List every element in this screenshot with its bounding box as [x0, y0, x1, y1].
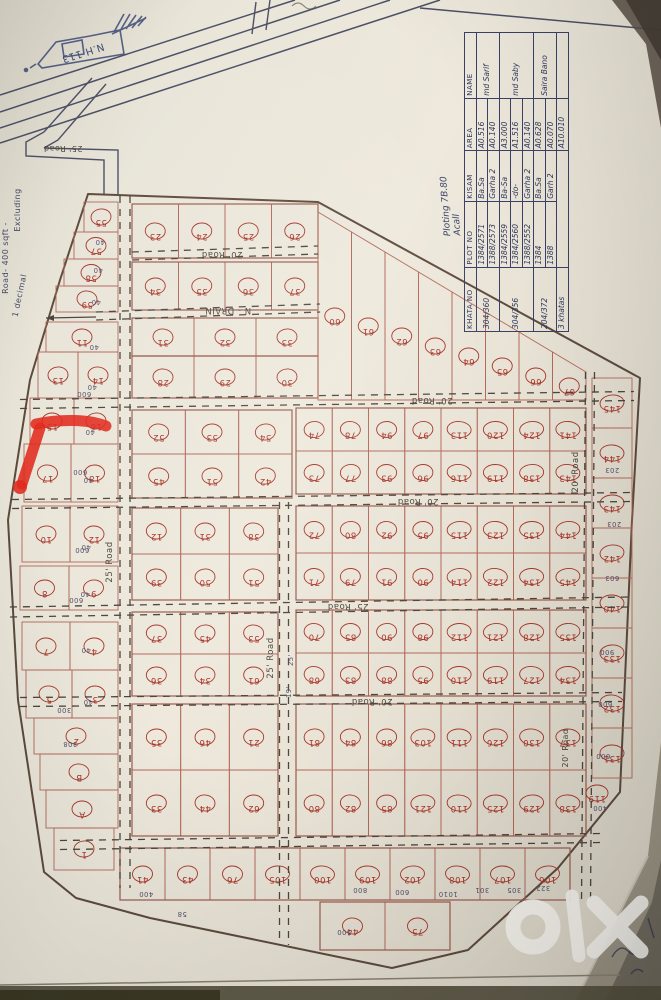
plot-cell	[477, 408, 513, 451]
plot-cell	[369, 506, 405, 553]
plot-cell	[514, 610, 550, 653]
dimension-label: 40	[89, 343, 99, 351]
plot-cell	[70, 622, 118, 670]
plot-block-outline	[132, 356, 318, 398]
plot-number: 134	[559, 675, 577, 685]
road-dashed-line	[582, 372, 586, 902]
plot-cell	[132, 770, 181, 836]
highway-line	[0, 0, 295, 95]
plot-cell	[132, 410, 185, 454]
highway-line	[0, 0, 440, 143]
plot-cell	[550, 408, 586, 451]
plot-number: 61	[362, 326, 374, 336]
plot-cell	[332, 653, 368, 696]
plot-number: 60	[329, 316, 341, 326]
table-cell-plot: 1384/2571	[476, 201, 488, 267]
plot-number: 145	[603, 403, 621, 413]
plot-number: 140	[603, 603, 621, 613]
plot-cell	[229, 704, 278, 770]
plot-cell	[229, 554, 278, 600]
red-highlight-marker	[36, 420, 106, 426]
plot-number: 23	[149, 231, 161, 241]
dimension-label: 308	[63, 740, 77, 748]
plot-number: 67	[563, 386, 575, 396]
plot-number: 138	[559, 803, 577, 813]
plot-number: 39	[150, 577, 162, 587]
table-cell-area: A0.516	[476, 98, 488, 150]
plot-number: 71	[308, 577, 320, 587]
plot-cell	[181, 770, 230, 836]
table-cell-plot: 1384	[534, 201, 546, 267]
dimension-label: 40	[83, 698, 93, 706]
plot-number: 41	[137, 874, 149, 884]
plot-cell	[550, 610, 586, 653]
plot-number: 7	[43, 646, 49, 656]
plot-number: 35	[150, 737, 162, 747]
plot-number: 21	[248, 737, 260, 747]
plot-number: 66	[530, 376, 542, 386]
plot-cell	[477, 770, 513, 836]
road-dashed-line	[12, 501, 632, 508]
plot-number: 24	[196, 231, 208, 241]
plot-number: 92	[381, 530, 393, 540]
plot-number: 78	[344, 430, 356, 440]
plot-cell	[441, 553, 477, 600]
red-highlight-marker	[22, 428, 40, 484]
plot-cell	[255, 848, 300, 900]
dimension-label: 203	[605, 466, 619, 474]
plot-number: 33	[281, 337, 293, 347]
plot-number: 142	[603, 553, 621, 563]
plot-number: 38	[248, 531, 260, 541]
plot-cell	[256, 318, 318, 356]
plot-number: 106	[539, 874, 557, 884]
plot-number: 11	[76, 337, 88, 347]
plot-number: 141	[559, 430, 577, 440]
road-dashed-line	[10, 607, 628, 617]
plot-number: 64	[463, 356, 475, 366]
plot-number: 46	[199, 737, 211, 747]
plot-number: 122	[487, 577, 505, 587]
plot-cell	[296, 653, 332, 696]
plot-number: 32	[219, 337, 231, 347]
plot-number: 97	[417, 430, 429, 440]
table-cell-khata: 3 khatas	[557, 267, 569, 331]
table-header-kisam: KISAM	[465, 151, 477, 201]
plot-cell	[550, 770, 586, 836]
plot-number: 124	[523, 430, 541, 440]
plot-number: 84	[344, 737, 356, 747]
plot-cell	[592, 378, 632, 428]
plot-cell	[38, 352, 78, 398]
plot-number: 75	[412, 926, 424, 936]
plot-number: 103	[414, 737, 432, 747]
dimension-label: 40	[83, 476, 93, 484]
plot-cell	[320, 902, 385, 950]
plot-number: 128	[523, 632, 541, 642]
plot-cell	[514, 451, 550, 494]
road-label: N - DRAIN	[205, 305, 251, 315]
plot-number: 33	[150, 803, 162, 813]
dimension-label: 203	[607, 520, 621, 528]
plot-number: 12	[150, 531, 162, 541]
plot-cell	[369, 704, 405, 770]
road-label: 25' Road	[327, 601, 368, 611]
dimension-label: 1010	[438, 890, 457, 898]
plot-number: 68	[308, 675, 320, 685]
plot-cell	[181, 654, 230, 696]
plot-cell	[225, 262, 272, 310]
plot-number: 129	[523, 803, 541, 813]
plot-number: 96	[417, 473, 429, 483]
plot-number: 50	[199, 577, 211, 587]
plot-number: 130	[523, 737, 541, 747]
map-annotation: Excluding	[13, 188, 22, 231]
road-dashed-line	[10, 597, 628, 607]
plot-cell	[405, 653, 441, 696]
table-cell-plot: 1384/2560	[511, 201, 523, 267]
plot-cell	[132, 356, 194, 398]
plot-cell	[132, 612, 181, 654]
dimension-label: 58	[177, 910, 187, 918]
road-dashed-line	[20, 392, 634, 400]
plot-number: 121	[487, 632, 505, 642]
plot-cell	[369, 553, 405, 600]
table-cell-name: md Sarif	[476, 33, 499, 99]
access-road-line	[266, 0, 270, 30]
plot-number: 51	[248, 577, 260, 587]
table-cell-kisam: Ba.Sa	[534, 151, 546, 201]
plot-number: 45	[199, 633, 211, 643]
plot-cell	[332, 610, 368, 653]
plot-cell	[332, 451, 368, 494]
plot-cell	[385, 252, 419, 400]
plot-cell	[477, 653, 513, 696]
plot-cell	[514, 408, 550, 451]
dimension-label: 900	[600, 648, 614, 656]
dimension-label: 40	[93, 266, 103, 274]
road-dashed-line	[20, 693, 622, 698]
plot-number: 34	[149, 286, 161, 296]
table-header-plot: PLOT NO	[465, 201, 477, 267]
plot-number: 17	[42, 473, 54, 483]
plot-number: 54	[259, 432, 271, 442]
plot-number: 85	[344, 632, 356, 642]
dimension-label: 40	[81, 646, 91, 654]
plot-cell	[441, 451, 477, 494]
plot-number: 29	[219, 377, 231, 387]
plot-number: 98	[417, 632, 429, 642]
plot-cell	[332, 408, 368, 451]
dimension-label: 300	[57, 706, 71, 714]
plot-cell	[369, 408, 405, 451]
plot-note-line1: Ploting 7B.80	[439, 176, 453, 237]
access-road-line	[44, 148, 118, 194]
plot-number: 25	[242, 231, 254, 241]
dimension-label: 600	[69, 596, 83, 604]
plot-cell	[405, 770, 441, 836]
plot-number: 80	[308, 803, 320, 813]
plot-number: 59	[81, 299, 93, 309]
dimension-label: 500	[337, 928, 351, 936]
road-label: 20' Road	[411, 395, 452, 405]
dimension-label: 40	[85, 428, 95, 436]
plot-cell	[441, 704, 477, 770]
plot-cell	[132, 508, 181, 554]
plot-cell	[477, 553, 513, 600]
plot-number: 90	[381, 632, 393, 642]
table-cell-khata: 304/360	[476, 267, 499, 331]
plot-cell	[179, 262, 226, 310]
plot-number: 31	[199, 531, 211, 541]
plot-cell	[229, 508, 278, 554]
table-cell-area: A3.000	[499, 98, 511, 150]
plot-number: 85	[381, 803, 393, 813]
plot-number: 62	[248, 803, 260, 813]
plot-cell	[181, 704, 230, 770]
plot-cell	[296, 408, 332, 451]
plot-number: 26	[289, 231, 301, 241]
plot-number: 28	[157, 377, 169, 387]
plot-cell	[181, 508, 230, 554]
plot-number: 1	[81, 849, 87, 859]
access-road-line	[26, 78, 104, 194]
plot-cell	[132, 454, 185, 498]
plot-cell	[514, 506, 550, 553]
plot-cell	[369, 451, 405, 494]
plot-number: 143	[603, 503, 621, 513]
dimension-label: 600	[77, 390, 91, 398]
dimension-label: 40	[91, 298, 101, 306]
table-cell-empty	[557, 151, 569, 267]
plot-cell	[352, 232, 386, 400]
table-cell-area: A1.516	[511, 98, 523, 150]
plot-number: 77	[344, 473, 356, 483]
plot-cell	[514, 770, 550, 836]
plot-cell	[185, 410, 238, 454]
plot-cell	[22, 506, 70, 562]
road-label: 25' Road	[105, 541, 115, 582]
plot-number: 45	[153, 476, 165, 486]
plot-number: 121	[414, 803, 432, 813]
plot-number: 8	[42, 588, 48, 598]
plot-cell	[132, 554, 181, 600]
plot-number: 123	[487, 530, 505, 540]
plot-cell	[20, 566, 69, 610]
map-annotation: 25' Road	[44, 144, 83, 153]
top-edge-scribble	[292, 3, 316, 9]
plot-number: 107	[494, 874, 512, 884]
plot-cell	[441, 408, 477, 451]
dimension-label: 603	[605, 574, 619, 582]
plot-number: 102	[404, 874, 422, 884]
plot-number: 79	[344, 577, 356, 587]
plot-number: 30	[281, 377, 293, 387]
plot-cell	[405, 506, 441, 553]
plot-number: 88	[381, 675, 393, 685]
plot-number: 120	[487, 430, 505, 440]
plot-cell	[40, 754, 118, 790]
plot-cell	[332, 506, 368, 553]
plot-number: 105	[269, 874, 287, 884]
table-cell-kisam: Garh 2	[545, 151, 557, 201]
highway-line	[0, 0, 390, 128]
plot-number: 134	[523, 577, 541, 587]
plot-cell	[592, 528, 632, 578]
plot-number: 9	[91, 588, 97, 598]
plot-cell	[441, 770, 477, 836]
plot-cell	[239, 454, 292, 498]
plot-number: 95	[417, 530, 429, 540]
plot-number: A	[79, 809, 85, 819]
table-cell-kisam: -do-	[511, 151, 523, 201]
plot-number: 113	[450, 430, 468, 440]
plot-number: 4	[91, 646, 97, 656]
photo-of-plot-map: 555758591113141516171810128974532BA12324…	[0, 0, 661, 1000]
plot-number: 72	[308, 530, 320, 540]
plot-number: 100	[314, 874, 332, 884]
plot-cell	[592, 578, 632, 628]
plot-cell	[272, 204, 319, 258]
dimension-label: 301	[475, 886, 489, 894]
table-cell-khata: 304/356	[499, 267, 534, 331]
plot-number: 13	[52, 375, 64, 385]
dimension-label: 600	[395, 888, 409, 896]
plot-number: 10	[40, 534, 52, 544]
plot-number: 73	[308, 473, 320, 483]
plot-cell	[296, 704, 332, 770]
plot-cell	[272, 262, 319, 310]
road-label: 25' Road	[266, 637, 276, 678]
dimension-label: 400	[593, 804, 607, 812]
plot-cell	[256, 356, 318, 398]
plot-cell	[300, 848, 345, 900]
plot-number: 34	[199, 675, 211, 685]
dimension-label: 40	[95, 238, 105, 246]
table-cell-name: Saira Bano	[534, 33, 557, 99]
plot-cell	[210, 848, 255, 900]
table-cell-name: md Saby	[499, 33, 534, 99]
dimension-label: 25'	[287, 654, 295, 666]
truck-sketch-icon	[25, 14, 147, 72]
plot-cell	[369, 770, 405, 836]
dimension-label: 19'	[285, 686, 293, 698]
plot-number: 95	[417, 675, 429, 685]
dimension-label: 40	[87, 383, 97, 391]
plot-number: 5	[46, 694, 52, 704]
plot-cell	[369, 610, 405, 653]
plot-number: 37	[289, 286, 301, 296]
khata-table-block: Ploting 7B.80 Acall KHATA NO PLOT NO KIS…	[438, 26, 569, 332]
plot-number: 12	[88, 534, 100, 544]
table-cell-area: A0.628	[534, 98, 546, 150]
plot-number: 111	[450, 737, 468, 747]
table-cell-area: A0.140	[488, 98, 500, 150]
plot-number: 57	[90, 246, 102, 256]
plot-cell	[194, 356, 256, 398]
map-annotation: Road- 400 sqft -	[1, 222, 10, 294]
plot-cell	[514, 553, 550, 600]
plot-number: 83	[344, 675, 356, 685]
plot-number: 135	[523, 530, 541, 540]
table-cell-kisam: Ba-Sa	[499, 151, 511, 201]
plot-cell	[296, 770, 332, 836]
plot-cell	[239, 410, 292, 454]
plot-cell	[332, 704, 368, 770]
plot-cell	[318, 212, 352, 400]
plot-number: 43	[182, 874, 194, 884]
plot-number: 114	[450, 577, 468, 587]
plot-number: 70	[308, 632, 320, 642]
plot-number: 76	[227, 874, 239, 884]
plot-cell	[185, 454, 238, 498]
plot-cell	[369, 653, 405, 696]
road-label: 20' Road	[397, 496, 438, 506]
plot-cell	[550, 553, 586, 600]
plot-number: 53	[206, 432, 218, 442]
plot-cell	[132, 204, 179, 258]
plot-cell	[405, 553, 441, 600]
plot-number: 110	[450, 675, 468, 685]
plot-number: 55	[95, 217, 107, 227]
plot-note-line2: Acall	[452, 214, 463, 236]
table-cell-area: A10.010	[557, 98, 569, 150]
table-cell-plot: 1388	[545, 201, 557, 267]
plot-number: 81	[308, 737, 320, 747]
table-cell-plot: 1388/2552	[522, 201, 534, 267]
plot-cell	[405, 408, 441, 451]
plot-number: 62	[396, 336, 408, 346]
plot-number: 108	[449, 874, 467, 884]
plot-cell	[405, 610, 441, 653]
plot-number: B	[76, 772, 82, 782]
dimension-label: 600	[596, 752, 610, 760]
plot-number: 127	[523, 675, 541, 685]
plot-number: 94	[381, 430, 393, 440]
plot-note: Ploting 7B.80 Acall	[433, 85, 463, 236]
road-label: 20' Road	[351, 696, 392, 706]
plot-number: 86	[381, 737, 393, 747]
road-dashed-line	[60, 834, 600, 841]
plot-cell	[22, 622, 70, 670]
table-cell-kisam: Garha 2	[488, 151, 500, 201]
plot-cell	[550, 653, 586, 696]
map-annotation: 20' Road	[561, 729, 570, 768]
plot-number: 119	[487, 473, 505, 483]
plot-number: 82	[344, 803, 356, 813]
plot-cell	[181, 554, 230, 600]
map-annotation: 1 decimal	[11, 273, 29, 318]
access-road-line	[44, 84, 106, 148]
plot-cell	[132, 318, 194, 356]
plot-cell	[519, 332, 553, 400]
plot-number: 52	[153, 432, 165, 442]
plot-number: 144	[603, 453, 621, 463]
plot-number: 90	[417, 577, 429, 587]
plot-cell	[405, 451, 441, 494]
plot-cell	[441, 610, 477, 653]
plot-number: 91	[381, 577, 393, 587]
plot-cell	[477, 610, 513, 653]
road-dashed-line	[20, 400, 634, 408]
dimension-label: 600	[75, 546, 89, 554]
road-label: 20' Road	[201, 249, 242, 259]
plot-cell	[514, 653, 550, 696]
plot-number: 74	[308, 430, 320, 440]
dimension-label: 322	[536, 884, 550, 892]
plot-cell	[132, 654, 181, 696]
plot-cell	[229, 770, 278, 836]
